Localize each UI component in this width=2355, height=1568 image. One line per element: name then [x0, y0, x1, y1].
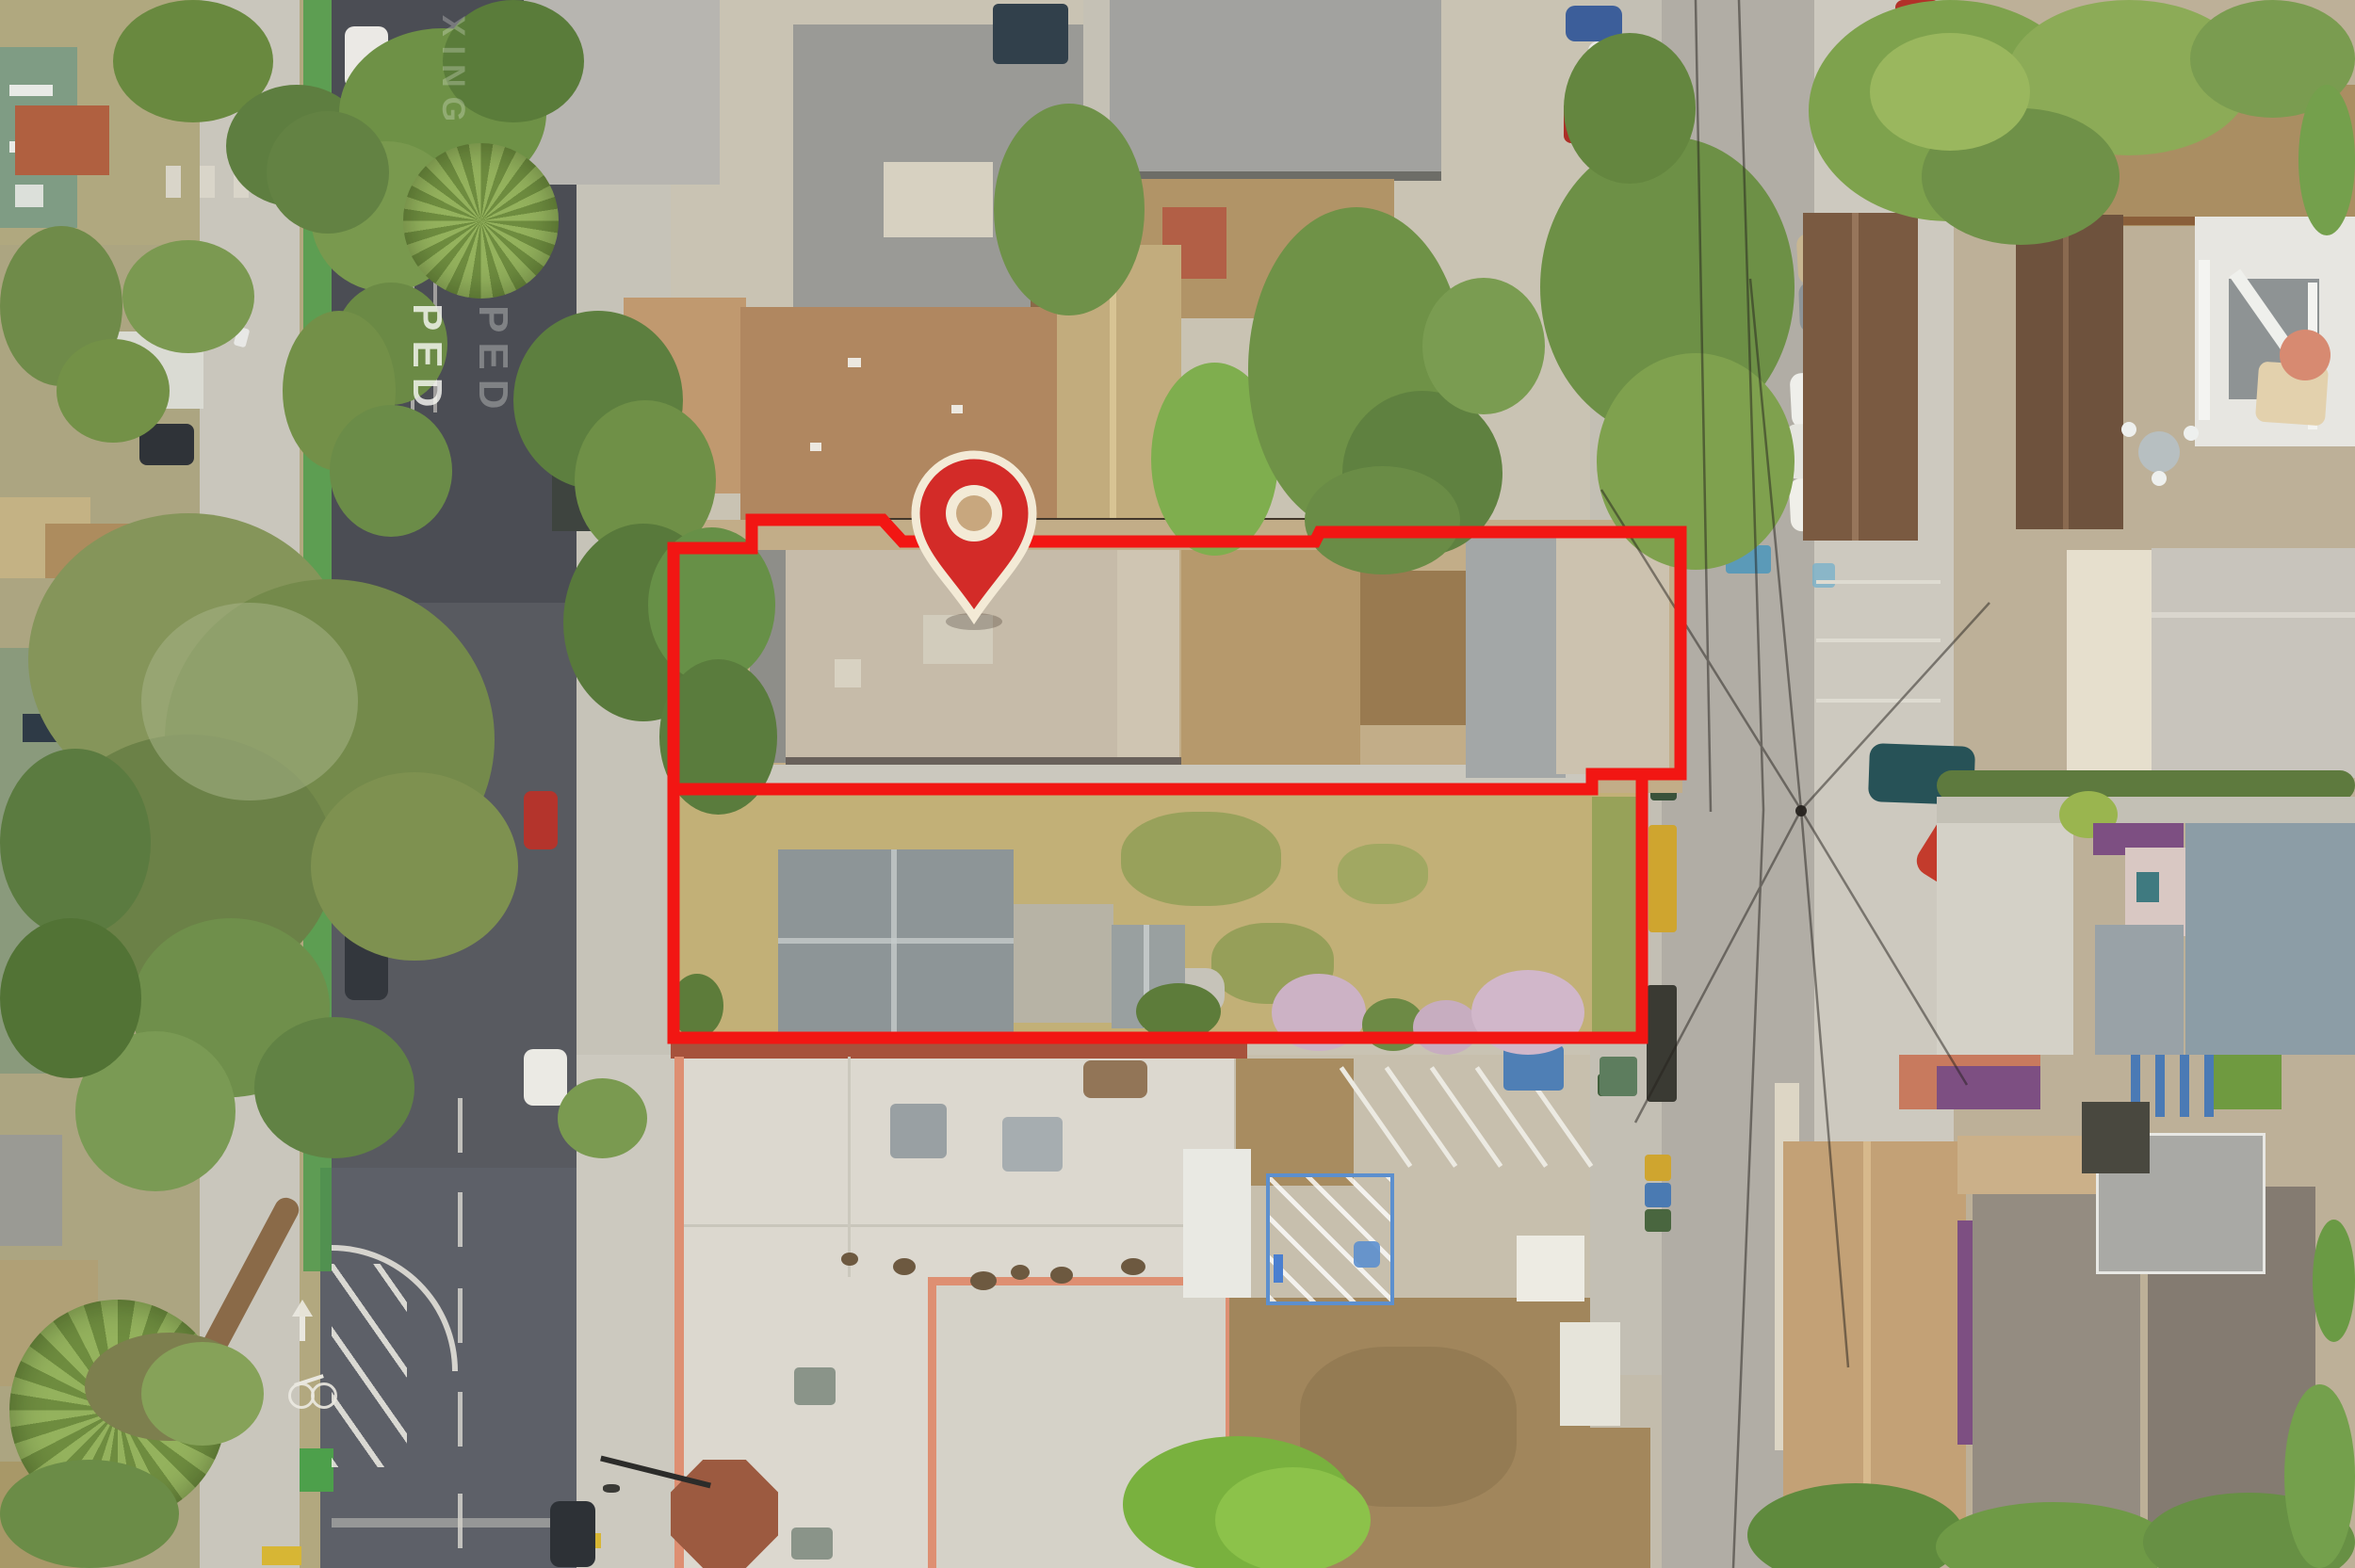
annotation-overlay	[0, 0, 2355, 1568]
parcel-boundary-upper	[674, 520, 1681, 789]
pin-hole	[956, 495, 992, 531]
aerial-photo-stage: PED PED XING	[0, 0, 2355, 1568]
power-lines	[1601, 0, 1990, 1568]
parcel-boundary-lower	[674, 774, 1642, 1038]
